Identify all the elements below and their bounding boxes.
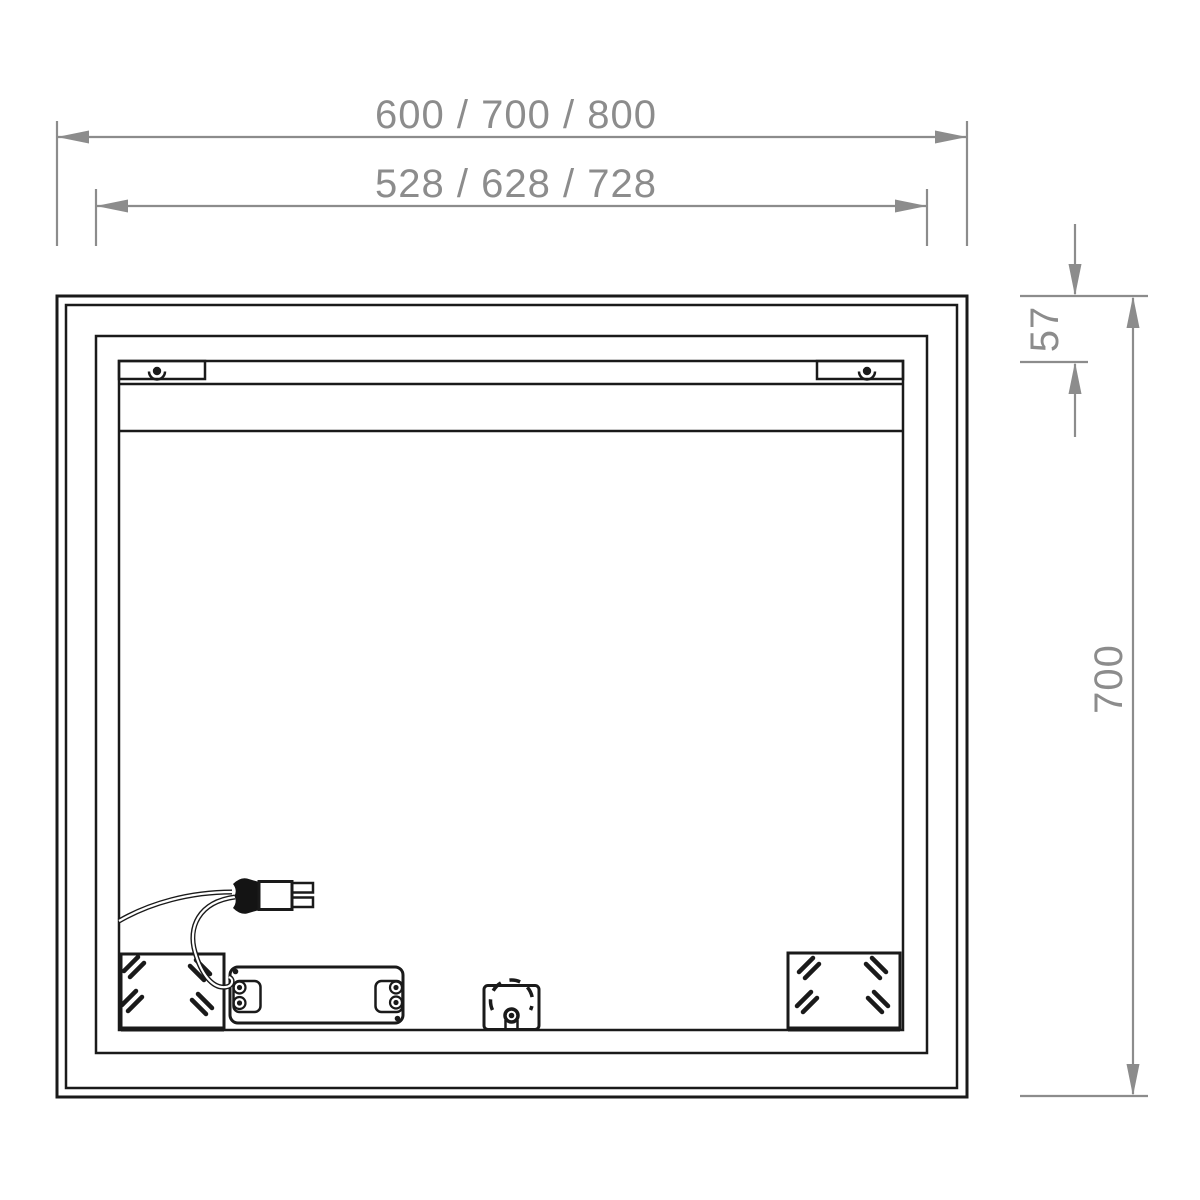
mounting-pad-right	[788, 953, 900, 1029]
arrow-up-icon	[1127, 296, 1140, 328]
arrow-left-icon	[57, 131, 89, 144]
dimension-group: 600 / 700 / 800 528 / 628 / 728 57	[57, 93, 1148, 1096]
bracket-screw-left-icon	[149, 367, 165, 380]
plug-pin-bottom	[292, 898, 313, 908]
hanger-width-label: 528 / 628 / 728	[375, 162, 657, 206]
plug-pin-top	[292, 883, 313, 893]
mirror-outer-frame	[57, 296, 967, 1097]
overall-height-label: 700	[1087, 644, 1131, 714]
technical-drawing-page: 600 / 700 / 800 528 / 628 / 728 57	[0, 0, 1200, 1200]
mirror-outline-group	[57, 296, 967, 1097]
arrow-right-icon	[895, 200, 927, 213]
dimension-overall-height: 700	[1020, 296, 1148, 1096]
bracket-screw-right-icon	[859, 367, 875, 380]
plug-body	[259, 882, 292, 910]
plug-strain-relief	[233, 878, 259, 914]
mirror-dimension-diagram: 600 / 700 / 800 528 / 628 / 728 57	[0, 0, 1200, 1200]
arrow-up-icon	[1069, 362, 1082, 394]
mounting-pad-left	[121, 954, 224, 1029]
arrow-right-icon	[935, 131, 967, 144]
back-panel	[119, 361, 903, 1030]
overall-width-label: 600 / 700 / 800	[375, 93, 657, 137]
arrow-down-icon	[1127, 1064, 1140, 1096]
arrow-left-icon	[96, 200, 128, 213]
dimension-hanger-width: 528 / 628 / 728	[96, 162, 927, 246]
rail-offset-label: 57	[1023, 306, 1067, 353]
dimension-rail-offset: 57	[1020, 224, 1148, 437]
power-plug	[233, 878, 313, 914]
led-driver-box	[230, 967, 403, 1023]
keyhole-bracket	[484, 980, 539, 1029]
mirror-recess-edge	[96, 336, 927, 1053]
arrow-down-icon	[1069, 264, 1082, 296]
